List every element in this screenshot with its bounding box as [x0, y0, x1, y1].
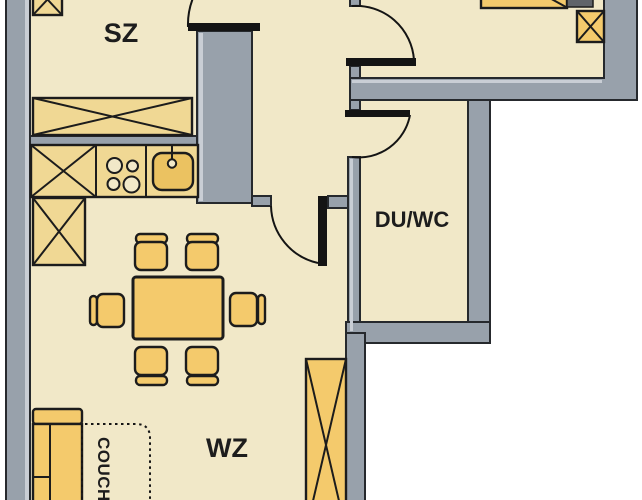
tall-wardrobe [306, 359, 346, 500]
wall-highlight [350, 159, 353, 331]
wz-wardrobe [306, 359, 346, 500]
wall-highlight [25, 0, 29, 500]
wall-sz-south [30, 136, 197, 145]
chair-back [136, 376, 167, 385]
couch-armrest [33, 409, 82, 424]
wall-duwc-east-exterior [468, 100, 490, 343]
dining-chair [97, 294, 124, 327]
wall-stub-wz-door-left [252, 196, 271, 206]
bed-headboard [567, 0, 593, 7]
wall-duwc-west [348, 157, 360, 333]
stove-burner [127, 161, 138, 172]
stove-burner [124, 177, 140, 193]
wall-duwc-south-exterior [346, 322, 490, 343]
couch-body [33, 424, 82, 500]
wall-highlight [352, 80, 602, 83]
stove-burner [108, 178, 120, 190]
dining-chair [230, 293, 257, 326]
dining-table [133, 277, 223, 339]
dining-chair [186, 347, 218, 375]
crossed-wardrobe-small [33, 0, 62, 15]
room-label-sz: SZ [104, 18, 139, 48]
duwc-door-leaf [345, 110, 410, 117]
chair-back [187, 376, 218, 385]
stove-burner [107, 158, 122, 173]
wz-door-leaf [318, 196, 327, 266]
floor-plan: COUCH SZ DU/WC WZ [0, 0, 642, 500]
sz-door-leaf [188, 23, 260, 31]
dining-chair [135, 347, 167, 375]
chair-back [258, 295, 265, 324]
floor-plan-canvas: COUCH SZ DU/WC WZ [0, 0, 642, 500]
room-label-duwc: DU/WC [375, 207, 450, 232]
sink-tap-knob [168, 159, 176, 167]
wall-highlight [199, 33, 203, 201]
dining-chair [186, 242, 218, 270]
wall-column-hall [197, 31, 252, 203]
bedroom-door-leaf [346, 58, 416, 66]
couch-label: COUCH [94, 437, 113, 500]
wall-wz-hall-right [328, 196, 350, 208]
dining-chair [135, 242, 167, 270]
wall-wz-east-exterior [346, 333, 365, 500]
room-label-wz: WZ [206, 433, 248, 463]
